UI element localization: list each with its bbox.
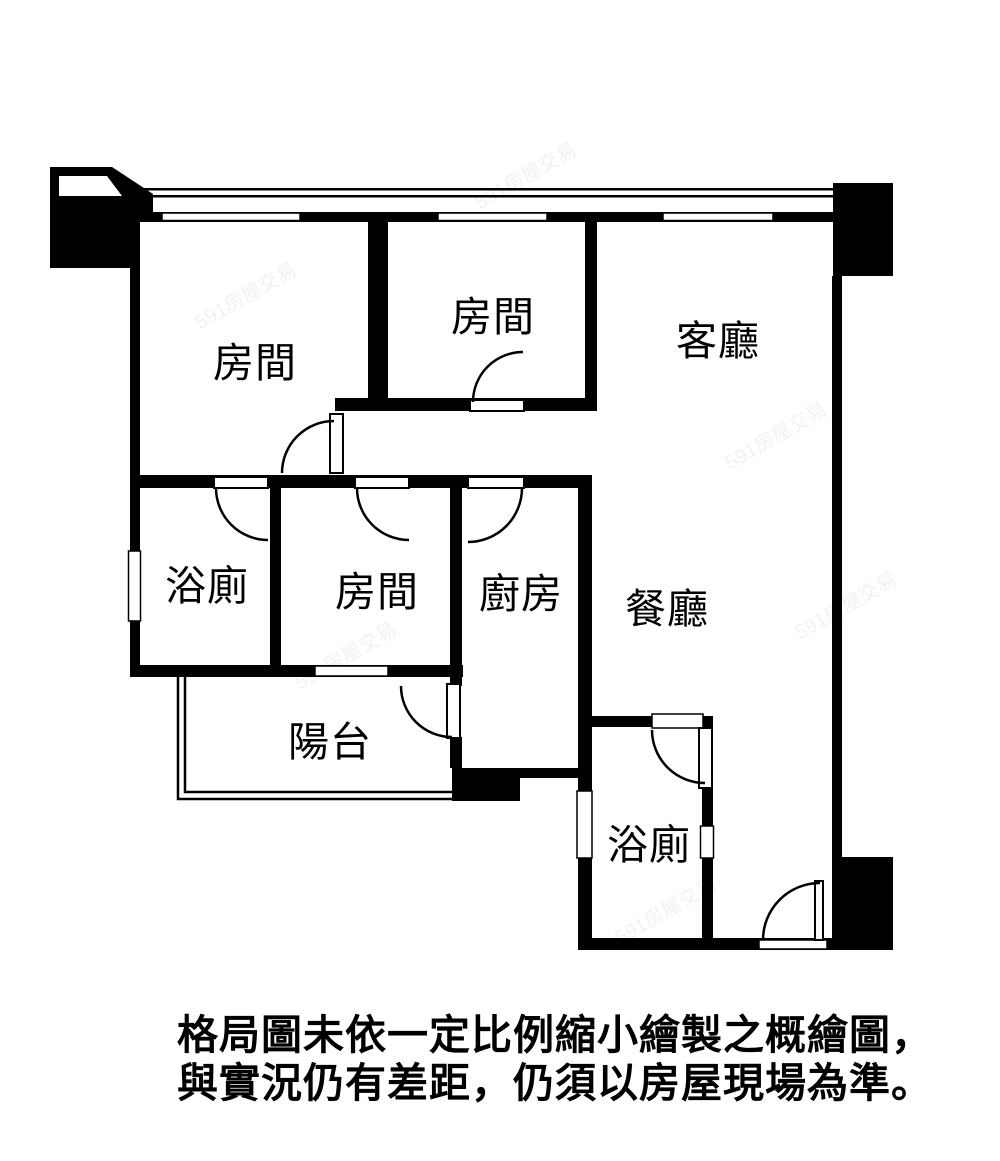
walls xyxy=(50,167,893,950)
room-label-kitchen: 廚房 xyxy=(479,571,563,617)
watermark-text: 591房屋交易 xyxy=(291,618,401,695)
door-entrance-swing xyxy=(763,883,820,940)
floor-plan-page: 591房屋交易 591房屋交易 591房屋交易 591房屋交易 591房屋交易 … xyxy=(0,0,1000,1161)
top-rail-inner xyxy=(136,195,833,198)
room-label-bedroom-middle: 房間 xyxy=(335,569,419,615)
watermark-layer: 591房屋交易 591房屋交易 591房屋交易 591房屋交易 591房屋交易 … xyxy=(191,138,901,950)
disclaimer-line-2: 與實況仍有差距，仍須以房屋現場為準。 xyxy=(177,1060,933,1106)
room-label-living-room: 客廳 xyxy=(676,318,760,364)
window-bathroom2-right xyxy=(701,826,714,858)
wall-kitchen-right xyxy=(578,475,592,950)
room-label-bathroom-upper: 浴廁 xyxy=(165,563,249,609)
disclaimer: 格局圖未依一定比例縮小繪製之概繪圖， 與實況仍有差距，仍須以房屋現場為準。 xyxy=(177,1012,933,1106)
window-bathroom1-left xyxy=(129,551,141,621)
watermark-text: 591房屋交易 xyxy=(791,568,901,645)
window-bedroom3-balcony xyxy=(315,666,388,676)
wall-kitchen-bottom-block xyxy=(452,768,520,801)
door-kitchen-leaf xyxy=(468,477,524,488)
floor-plan-drawing: 591房屋交易 591房屋交易 591房屋交易 591房屋交易 591房屋交易 … xyxy=(0,0,1000,1161)
door-bedroom2-leaf xyxy=(470,400,524,411)
door-kitchen-swing xyxy=(468,488,522,542)
door-bedroom2-swing xyxy=(473,352,523,402)
window-top-3 xyxy=(663,213,773,221)
window-top-1 xyxy=(162,213,300,221)
door-bedroom3-leaf xyxy=(355,477,409,488)
door-bedroom1-swing xyxy=(282,421,334,473)
wall-kitchen-left-upper xyxy=(450,475,462,686)
watermark-text: 591房屋交易 xyxy=(721,398,831,475)
wall-kitchen-bottom xyxy=(520,768,578,778)
wall-kitchen-left-lower xyxy=(450,737,462,768)
door-bathroom2-opening xyxy=(652,714,703,728)
room-label-bedroom-top-middle: 房間 xyxy=(451,294,535,340)
wall-bedroom2-living xyxy=(585,212,597,411)
wall-bedroom2-bottom xyxy=(335,398,597,411)
top-rail-outer xyxy=(136,188,833,191)
door-balcony-swing xyxy=(401,686,452,737)
window-top-2 xyxy=(438,213,547,221)
door-entrance-leaf xyxy=(815,881,823,940)
wall-middle-row-bottom xyxy=(130,665,463,677)
watermark-text: 591房屋交易 xyxy=(471,138,581,215)
door-balcony-leaf xyxy=(447,684,460,738)
door-bathroom1-swing xyxy=(216,488,268,540)
door-bedroom1-leaf xyxy=(330,414,343,473)
column-top-right xyxy=(833,183,893,276)
wall-bathroom1-bedroom3 xyxy=(270,475,281,677)
wall-bathroom2-top xyxy=(592,716,652,727)
door-bathroom1-leaf xyxy=(214,477,268,488)
doors xyxy=(214,352,827,949)
room-label-dining-room: 餐廳 xyxy=(625,586,709,632)
door-bedroom3-swing xyxy=(357,488,409,540)
room-label-bathroom-lower: 浴廁 xyxy=(607,822,691,868)
right-wall xyxy=(832,276,842,857)
room-label-bedroom-top-left: 房間 xyxy=(213,340,297,386)
door-entrance-threshold xyxy=(759,940,827,949)
column-bottom-right xyxy=(832,857,893,950)
room-label-balcony: 陽台 xyxy=(288,719,372,765)
door-bathroom2-swing xyxy=(652,730,705,783)
wall-bedrooms-divider xyxy=(368,212,388,400)
door-bathroom2-leaf xyxy=(699,728,712,788)
window-bathroom2-left xyxy=(577,791,592,858)
disclaimer-line-1: 格局圖未依一定比例縮小繪製之概繪圖， xyxy=(177,1012,933,1058)
watermark-text: 591房屋交易 xyxy=(191,258,301,335)
